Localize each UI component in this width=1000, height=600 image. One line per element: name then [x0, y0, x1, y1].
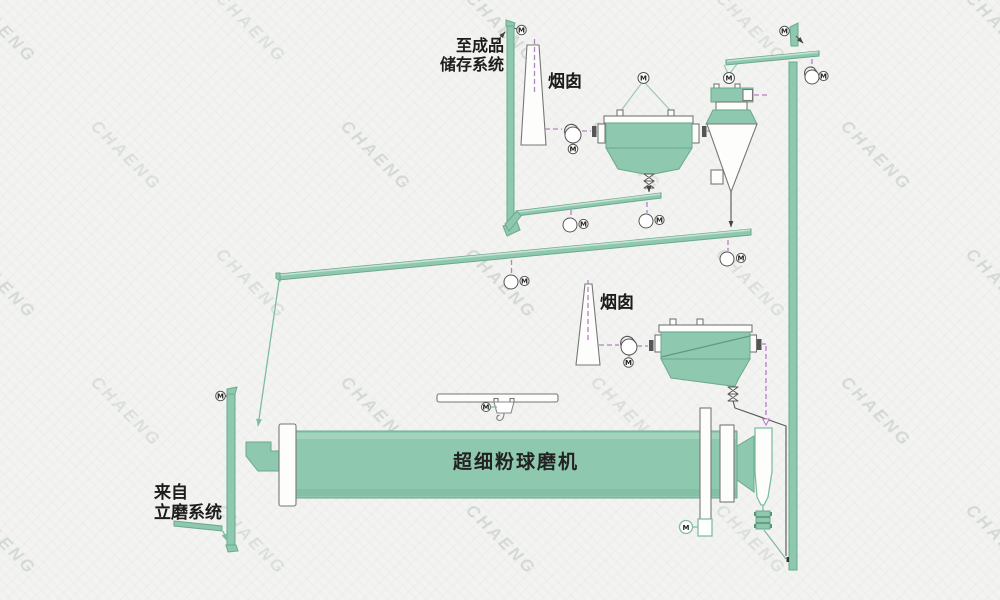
air-blower-4-icon: M: [720, 240, 746, 266]
chimney-2: [576, 280, 600, 365]
feed-elevator-motor-icon: M: [216, 391, 226, 401]
mill-inlet-bearing: [279, 424, 296, 506]
head-fan-icon: M: [805, 59, 828, 84]
fan-1-motor-icon: M: [568, 144, 578, 154]
svg-text:M: M: [518, 27, 525, 35]
mill-elevator: [787, 62, 798, 570]
return-chute-line: [258, 281, 279, 426]
product-elevator: [503, 20, 520, 236]
svg-text:M: M: [217, 393, 224, 401]
exhaust-fan-2-icon: [621, 336, 637, 356]
powder-separator-1: [598, 84, 707, 174]
svg-text:M: M: [781, 28, 788, 36]
mill-elevator-head-chute: [790, 23, 803, 46]
air-blower-1-icon: M: [563, 210, 588, 232]
air-blower-2-icon: M: [639, 202, 664, 228]
vertical-mill-feed-label-line2: 立磨系统: [154, 503, 222, 523]
air-duct-to-mill-discharge: [762, 344, 769, 425]
separator-2-discharge-valve-icon: [728, 387, 738, 401]
vertical-mill-feed-chute: [174, 521, 227, 541]
svg-text:M: M: [580, 221, 587, 229]
svg-text:M: M: [483, 404, 490, 412]
separator-1-discharge-valve-icon: [644, 174, 654, 192]
cyclone-feeder-motor-icon: M: [724, 73, 735, 84]
fan-2-motor-icon: M: [624, 358, 634, 368]
product-elevator-motor-icon: M: [517, 25, 527, 35]
mill-motor-icon: M: [680, 519, 713, 536]
cyclone-collector: [706, 64, 757, 227]
svg-text:M: M: [640, 75, 647, 83]
process-diagram-canvas: M M: [0, 0, 1000, 600]
product-storage-label-line1: 至成品: [418, 38, 504, 57]
svg-text:M: M: [726, 75, 733, 83]
svg-text:M: M: [738, 255, 745, 263]
product-storage-label: 至成品 储存系统: [418, 38, 504, 76]
ball-mill-label: 超细粉球磨机: [295, 452, 737, 474]
mill-gearbox: [698, 519, 712, 536]
rotary-valve: [754, 511, 786, 559]
svg-text:M: M: [656, 217, 663, 225]
process-flow-diagram: CHAENGCHAENGCHAENGCHAENGCHAENGCHAENGCHAE…: [0, 0, 1000, 600]
exhaust-fan-1-icon: [565, 124, 581, 144]
mill-discharge-hopper: [755, 428, 772, 511]
feed-elevator: [225, 387, 238, 552]
powder-separator-2: [655, 319, 762, 386]
duct-damper-2: [649, 340, 654, 351]
vertical-mill-feed-label: 来自 立磨系统: [154, 483, 222, 523]
mill-feed-chute: [246, 442, 284, 471]
product-storage-label-line2: 储存系统: [418, 57, 504, 76]
top-belt-conveyor: [726, 51, 819, 65]
chimney-2-label: 烟囱: [600, 293, 634, 313]
svg-text:M: M: [625, 359, 632, 367]
svg-text:M: M: [820, 73, 827, 81]
mill-discharge-cone: [737, 436, 754, 492]
air-blower-3-icon: M: [504, 260, 529, 289]
separator-1-feeder-motor-icon: M: [638, 73, 649, 84]
chimney-1: [521, 37, 546, 145]
crane-hoist-icon: M: [437, 394, 558, 420]
return-belt-conveyor: [276, 229, 751, 281]
svg-text:M: M: [521, 278, 528, 286]
duct-damper-1: [592, 126, 597, 137]
svg-text:M: M: [683, 524, 690, 532]
chimney-1-label: 烟囱: [548, 72, 582, 92]
svg-text:M: M: [570, 146, 577, 154]
mill-elevator-motor-icon: M: [780, 26, 790, 36]
vertical-mill-feed-label-line1: 来自: [154, 483, 222, 503]
